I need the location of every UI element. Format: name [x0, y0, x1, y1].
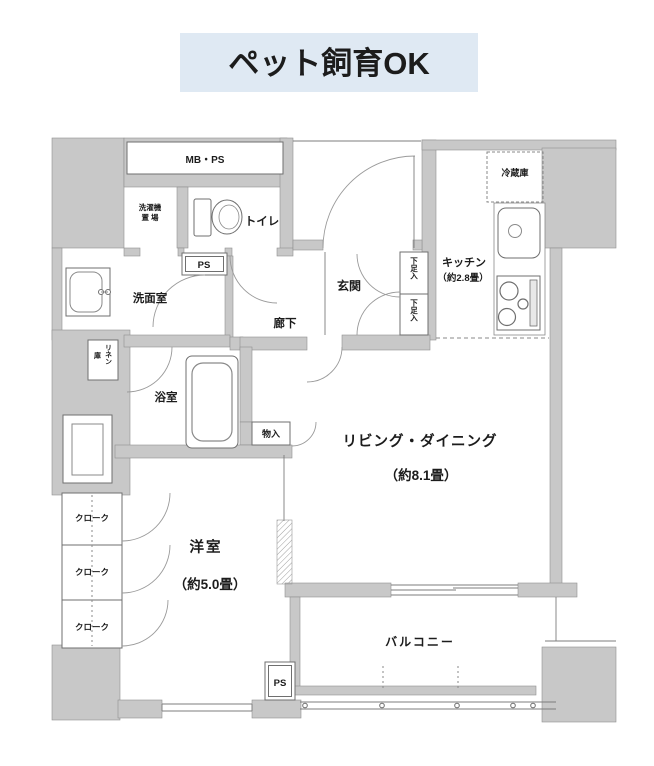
label-laundry-1: 洗濯機 [139, 202, 162, 212]
wall-block-top-left [52, 138, 124, 248]
wall-laundry-toilet [177, 187, 188, 248]
label-ps-bottom: PS [274, 678, 287, 689]
wall-bath-top [124, 335, 230, 347]
label-fridge: 冷蔵庫 [501, 167, 528, 178]
wall-seg [252, 700, 301, 718]
label-western-size: （約5.0畳） [174, 576, 247, 592]
cloak-door-arc-2 [122, 545, 170, 593]
cloak-door-arc-1 [122, 493, 170, 541]
label-bath: 浴室 [155, 390, 178, 404]
floorplan-canvas: ペット飼育OK [0, 0, 654, 766]
label-entrance: 玄関 [337, 278, 361, 293]
front-door-arc [323, 156, 415, 248]
label-linen-2: 庫 [94, 351, 102, 360]
wall-block-bottom-right [542, 647, 616, 722]
cloak-door-arc-3 [122, 600, 168, 646]
shoe-door-arc-upper [357, 254, 400, 297]
toilet-fixture [194, 199, 242, 236]
wall-seg [124, 248, 140, 256]
label-mbps: MB・PS [186, 155, 225, 166]
label-cloak-1: クローク [75, 513, 109, 523]
shoe-door-arc-lower [357, 292, 400, 335]
wall-right [550, 248, 562, 585]
partition-hatch [277, 520, 292, 584]
label-cloak-2: クローク [75, 567, 109, 577]
kitchen-counter [494, 203, 545, 335]
label-ps-mid: PS [198, 260, 211, 271]
label-cloak-3: クローク [75, 622, 109, 632]
label-washroom: 洗面室 [133, 291, 168, 305]
wall-block-top-right [542, 148, 616, 248]
label-kitchen-size: （約2.8畳） [437, 272, 488, 284]
label-storage: 物入 [262, 428, 280, 439]
wall-left [52, 248, 62, 340]
storage-door-arc [292, 422, 316, 446]
wall-block-bottom-left [52, 645, 120, 720]
linen-box [88, 340, 118, 380]
label-hallway: 廊下 [274, 316, 297, 330]
label-balcony: バルコニー [385, 635, 455, 649]
wall-seg [277, 248, 293, 256]
label-shoe-lower: 下足入 [409, 299, 418, 322]
wall-seg [118, 700, 162, 718]
label-living-size: （約8.1畳） [385, 467, 458, 483]
stove [497, 276, 540, 330]
wall-entry-stub-left [293, 240, 323, 250]
toilet-door-arc [230, 256, 277, 303]
label-western: 洋室 [190, 538, 223, 556]
western-room-window [162, 704, 252, 711]
wall-ld-bottom-right [518, 583, 577, 597]
vanity-sink [66, 268, 111, 316]
wall-storage-left [240, 422, 252, 445]
banner-text: ペット飼育OK [228, 46, 430, 81]
bath-door-arc [127, 347, 172, 392]
ld-balcony-sliding-door [391, 585, 518, 595]
label-kitchen: キッチン [442, 256, 486, 269]
balcony-divider-marks [383, 666, 458, 688]
label-linen-1: リネン [105, 344, 113, 365]
ld-door-arc [307, 347, 342, 382]
label-laundry-2: 置 場 [141, 212, 159, 222]
bathtub [186, 356, 238, 448]
pet-ok-banner: ペット飼育OK [180, 33, 478, 92]
wall-balcony-bottom [290, 686, 536, 695]
label-shoe-upper: 下足入 [409, 257, 418, 280]
kitchen-sink [498, 208, 540, 258]
wall-entrance-ld [342, 335, 430, 350]
label-toilet: トイレ [245, 215, 280, 228]
wall-ld-bottom-left [285, 583, 391, 597]
label-living: リビング・ダイニング [343, 432, 498, 450]
left-shaft-box [63, 415, 112, 483]
wall-bath-right [240, 347, 252, 422]
